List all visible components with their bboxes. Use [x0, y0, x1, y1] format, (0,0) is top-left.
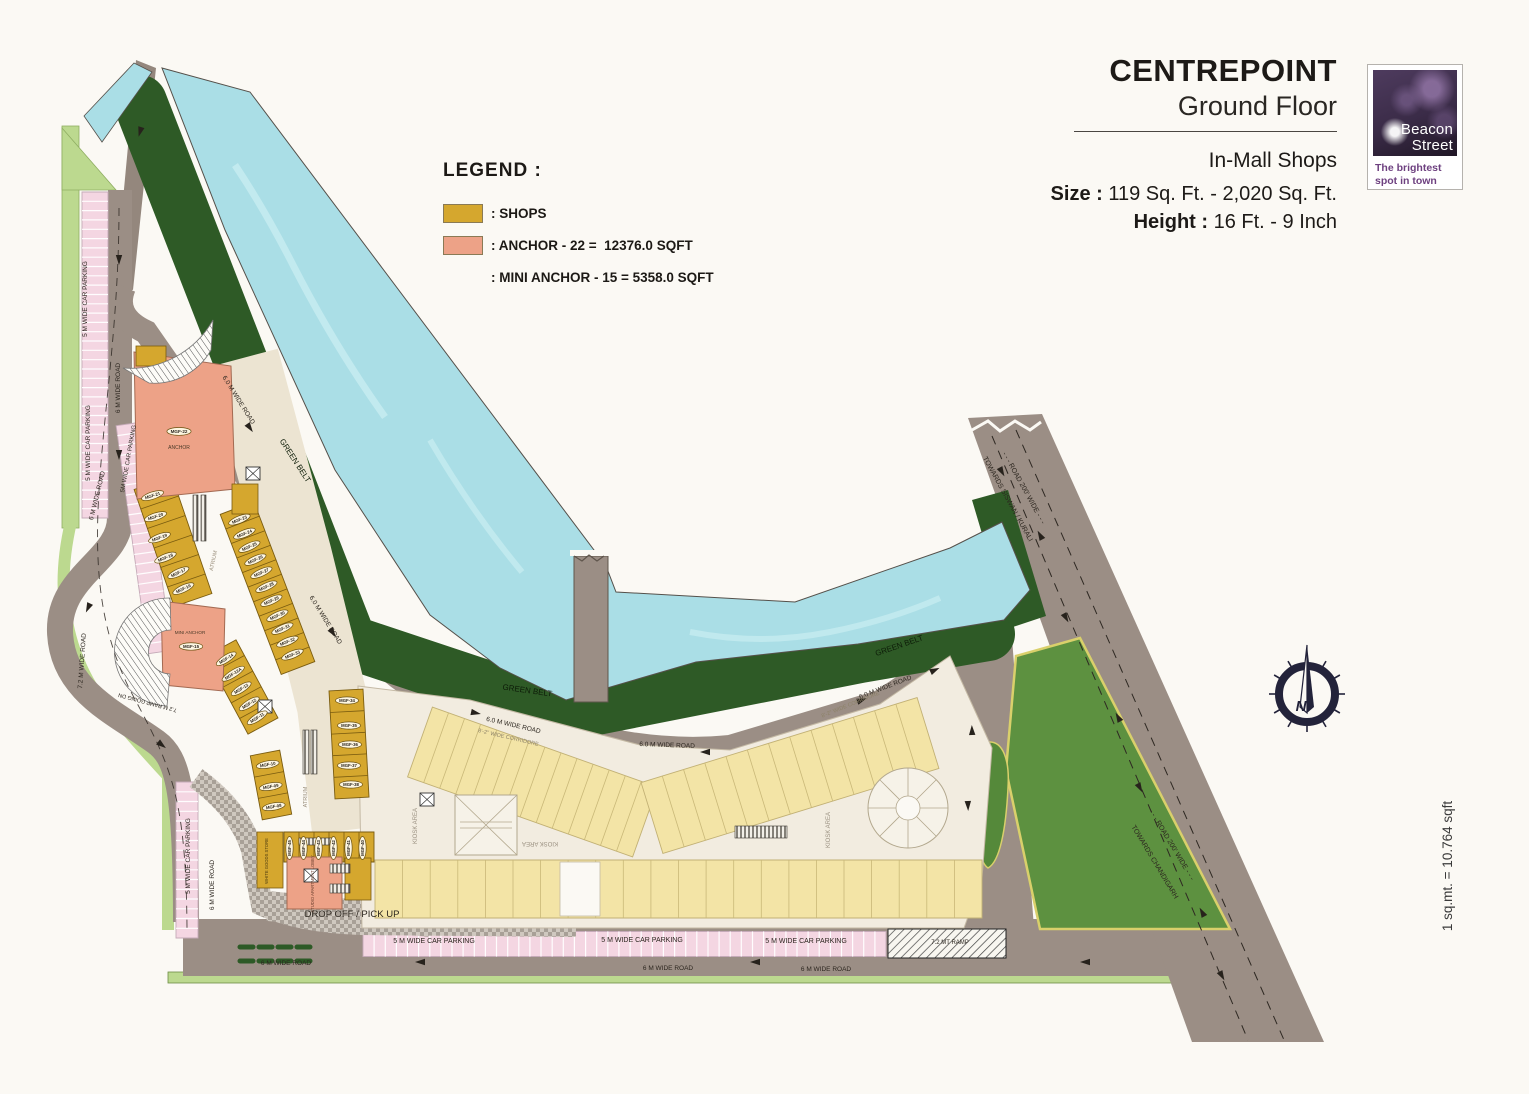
plan-label: MGF-22: [167, 427, 191, 435]
plan-label: 6 M WIDE ROAD: [643, 965, 694, 972]
title-block: CENTREPOINT Ground Floor In-Mall Shops S…: [1051, 54, 1337, 236]
legend-swatch: [443, 204, 483, 223]
svg-text:6 M WIDE ROAD: 6 M WIDE ROAD: [209, 860, 216, 911]
page-title: CENTREPOINT: [1051, 54, 1337, 88]
legend-item: : MINI ANCHOR - 15 = 5358.0 SQFT: [443, 268, 714, 287]
plan-label: STUDIO APARTMENT LOBBY: [310, 855, 315, 912]
plan-label: 5 M WIDE CAR PARKING: [82, 261, 89, 337]
plan-label: MGF-34: [335, 697, 358, 704]
svg-text:DROP OFF / PICK UP: DROP OFF / PICK UP: [305, 909, 400, 920]
svg-text:5 M WIDE CAR PARKING: 5 M WIDE CAR PARKING: [393, 938, 475, 945]
svg-text:MGF-41: MGF-41: [346, 840, 351, 856]
logo-brand-name: Beacon Street: [1401, 122, 1453, 154]
svg-text:5 M WIDE CAR PARKING: 5 M WIDE CAR PARKING: [85, 405, 92, 481]
category-label: In-Mall Shops: [1051, 148, 1337, 174]
page-subtitle: Ground Floor: [1051, 90, 1337, 122]
plan-label: MGF-44: [300, 836, 307, 859]
plan-label: 7.2 MT RAMP: [931, 940, 969, 946]
plan-label: MGF-43: [315, 836, 322, 859]
compass-n: N: [1296, 698, 1308, 715]
compass-rose: N: [1269, 645, 1345, 732]
plan-label: ATRIUM: [303, 786, 309, 807]
legend-item: : ANCHOR - 22 = 12376.0 SQFT: [443, 236, 714, 255]
plan-label: MGF-38: [339, 781, 362, 788]
size-line: Size : 119 Sq. Ft. - 2,020 Sq. Ft.: [1051, 180, 1337, 208]
plan-label: 5 M WIDE CAR PARKING: [185, 818, 192, 894]
plan-label: ATRIUM: [209, 550, 219, 572]
svg-text:MGF-42: MGF-42: [331, 840, 336, 856]
plan-label: 6 M WIDE ROAD: [801, 966, 852, 973]
svg-text:5 M WIDE CAR PARKING: 5 M WIDE CAR PARKING: [765, 938, 847, 945]
plan-label: MGF-41: [345, 836, 352, 859]
plan-label: 6 M WIDE ROAD: [261, 960, 312, 967]
canal-pier: [570, 550, 612, 702]
svg-text:6 M WIDE ROAD: 6 M WIDE ROAD: [261, 960, 312, 967]
legend-label: : ANCHOR - 22 = 12376.0 SQFT: [491, 236, 693, 255]
svg-text:5 M WIDE CAR PARKING: 5 M WIDE CAR PARKING: [185, 818, 192, 894]
legend-label: : MINI ANCHOR - 15 = 5358.0 SQFT: [491, 268, 714, 287]
plan-label: 5 M WIDE CAR PARKING: [393, 938, 475, 945]
svg-text:KIOSK AREA: KIOSK AREA: [826, 812, 832, 848]
svg-text:KIOSK AREA: KIOSK AREA: [522, 840, 558, 846]
plan-label: 1 sq.mt. = 10.764 sqft: [1440, 801, 1455, 931]
plan-label: MINI ANCHOR: [175, 630, 206, 635]
svg-text:ATRIUM: ATRIUM: [209, 550, 219, 572]
svg-text:MGF-45: MGF-45: [287, 840, 292, 856]
svg-text:ATRIUM: ATRIUM: [303, 786, 309, 807]
plan-label: MGF-40: [359, 836, 366, 859]
plan-label: MGF-42: [330, 836, 337, 859]
svg-text:MGF-44: MGF-44: [301, 840, 306, 856]
svg-text:WHITE GOODS STORE: WHITE GOODS STORE: [264, 838, 269, 884]
logo-tagline: The brightest spot in town: [1373, 156, 1457, 187]
svg-text:MGF-35: MGF-35: [341, 723, 357, 728]
svg-text:STUDIO APARTMENT LOBBY: STUDIO APARTMENT LOBBY: [310, 855, 315, 912]
svg-text:6 M WIDE ROAD: 6 M WIDE ROAD: [643, 965, 694, 972]
svg-text:6 M WIDE ROAD: 6 M WIDE ROAD: [801, 966, 852, 973]
svg-text:MGF-34: MGF-34: [339, 698, 355, 703]
beacon-street-logo: Beacon Street The brightest spot in town: [1367, 64, 1463, 190]
plan-label: 5 M WIDE CAR PARKING: [601, 937, 683, 944]
plan-label: MGF-35: [337, 722, 360, 729]
legend-label: : SHOPS: [491, 204, 547, 223]
svg-text:ANCHOR: ANCHOR: [168, 445, 190, 451]
svg-text:1 sq.mt. = 10.764 sqft: 1 sq.mt. = 10.764 sqft: [1440, 801, 1455, 931]
svg-text:KIOSK AREA: KIOSK AREA: [413, 808, 419, 844]
svg-text:MGF-15: MGF-15: [183, 644, 200, 649]
svg-text:5 M WIDE CAR PARKING: 5 M WIDE CAR PARKING: [82, 261, 89, 337]
svg-text:MGF-37: MGF-37: [341, 763, 357, 768]
plan-label: 5 M WIDE CAR PARKING: [765, 938, 847, 945]
svg-text:MGF-40: MGF-40: [360, 840, 365, 856]
height-line: Height : 16 Ft. - 9 Inch: [1051, 208, 1337, 236]
plan-label: DROP OFF / PICK UP: [305, 909, 400, 920]
plan-label: KIOSK AREA: [826, 812, 832, 848]
svg-text:MGF-43: MGF-43: [316, 840, 321, 856]
svg-text:MGF-38: MGF-38: [343, 782, 359, 787]
legend-item: : SHOPS: [443, 204, 714, 223]
title-divider: [1074, 131, 1337, 132]
svg-text:MGF-22: MGF-22: [171, 429, 188, 434]
plan-label: KIOSK AREA: [522, 840, 558, 846]
plan-label: 6 M WIDE ROAD: [209, 860, 216, 911]
plan-label: MGF-45: [286, 836, 293, 859]
plan-label: MGF-15: [179, 643, 202, 650]
plan-label: 6 M WIDE ROAD: [115, 363, 122, 414]
svg-text:7.2 MT RAMP: 7.2 MT RAMP: [931, 940, 969, 946]
site-plan-page: N MGF-22ANCHORMINI ANCHORMGF-15MGF-21MGF…: [0, 0, 1529, 1094]
plan-label: WHITE GOODS STORE: [264, 838, 269, 884]
legend-swatch: [443, 236, 483, 255]
plan-label: 5 M WIDE CAR PARKING: [85, 405, 92, 481]
logo-photo: Beacon Street: [1373, 70, 1457, 156]
svg-text:MGF-36: MGF-36: [342, 742, 358, 747]
plan-label: ANCHOR: [168, 445, 190, 451]
svg-text:6 M WIDE ROAD: 6 M WIDE ROAD: [115, 363, 122, 414]
plan-label: MGF-37: [337, 762, 360, 769]
legend-title: LEGEND :: [443, 160, 714, 182]
plan-label: KIOSK AREA: [413, 808, 419, 844]
plan-label: MGF-36: [338, 741, 361, 748]
svg-text:5 M WIDE CAR PARKING: 5 M WIDE CAR PARKING: [601, 937, 683, 944]
svg-text:MINI ANCHOR: MINI ANCHOR: [175, 630, 206, 635]
legend: LEGEND : : SHOPS: ANCHOR - 22 = 12376.0 …: [443, 160, 714, 300]
